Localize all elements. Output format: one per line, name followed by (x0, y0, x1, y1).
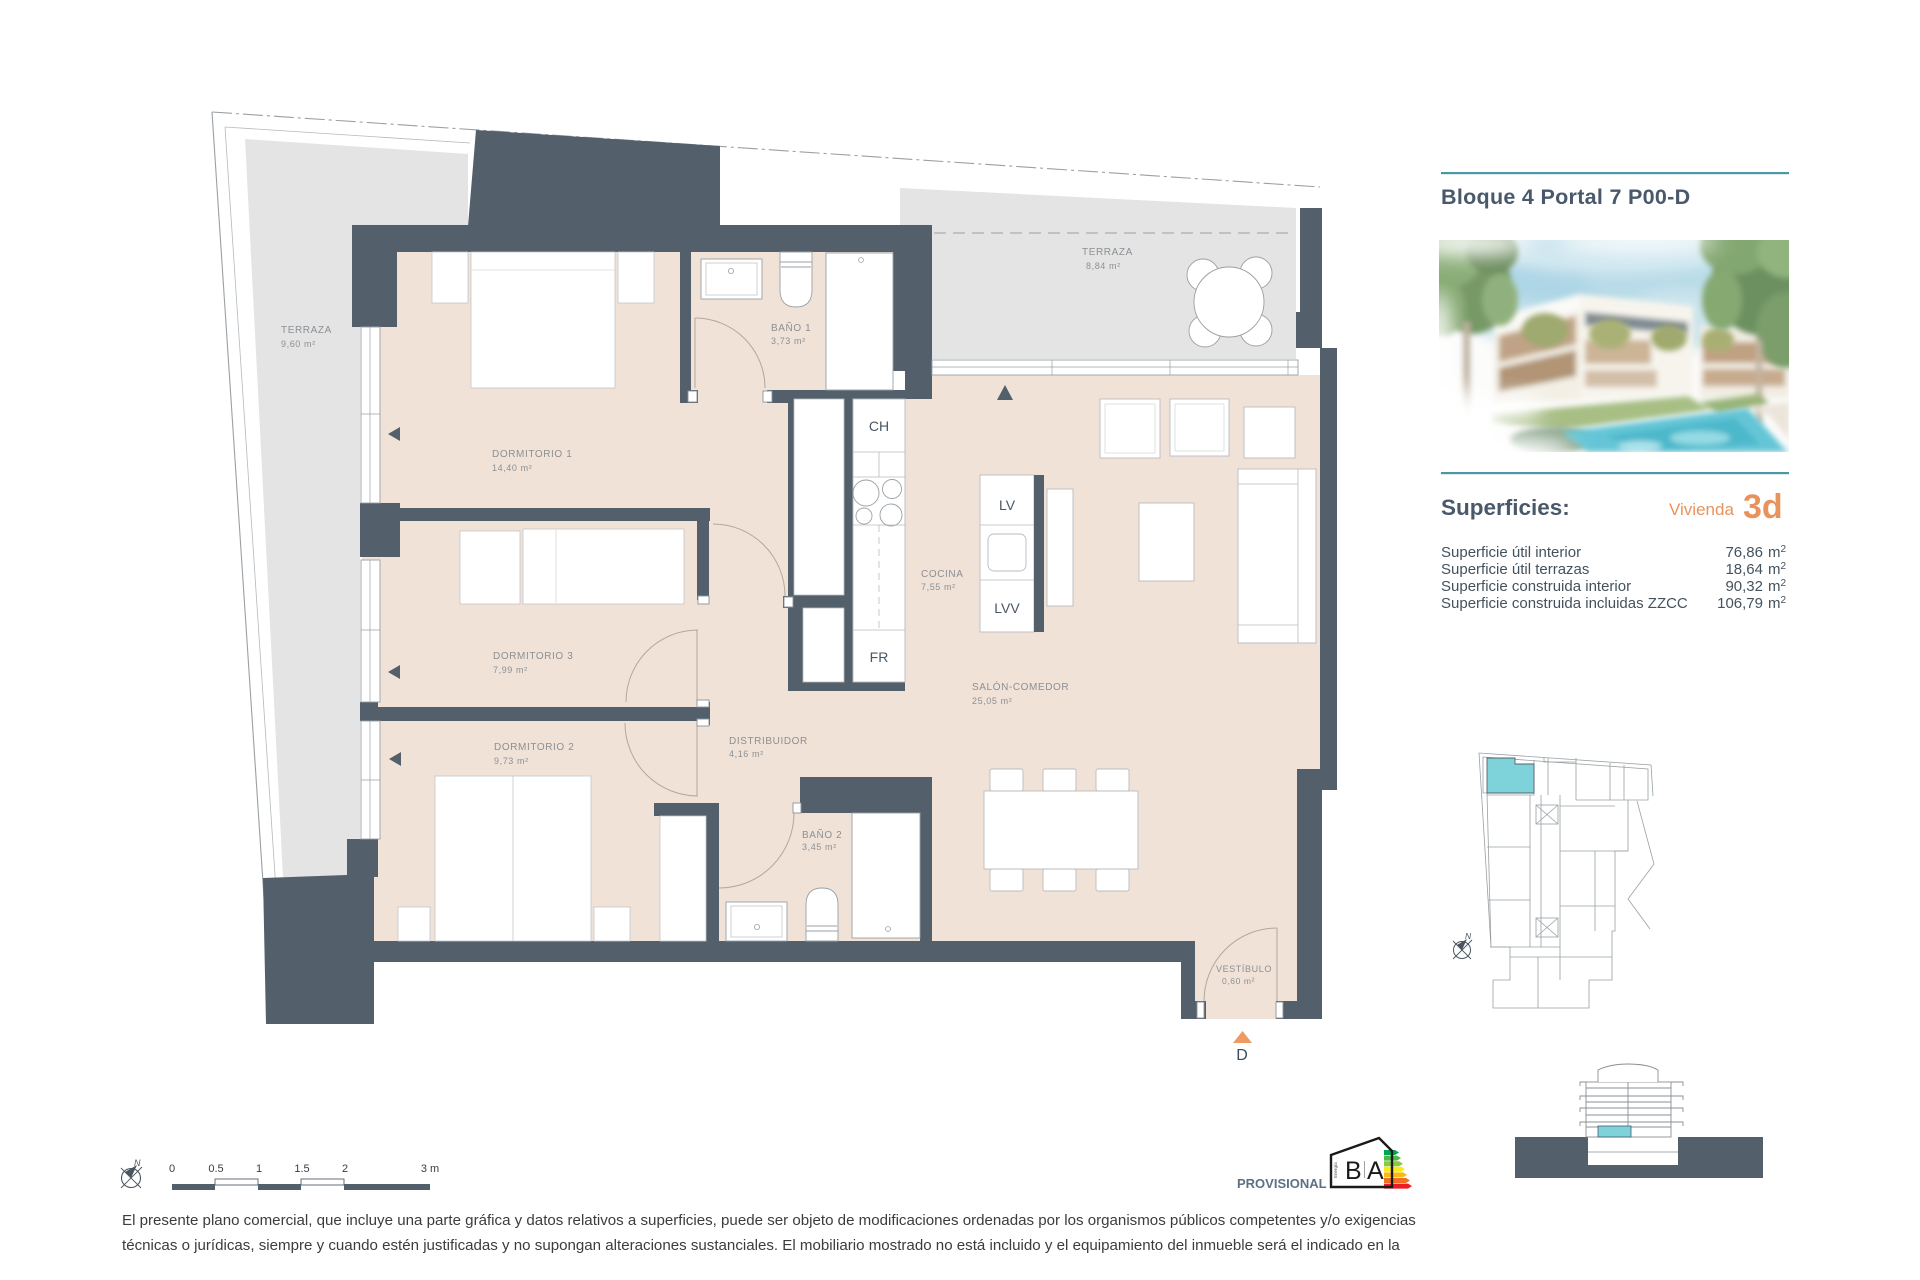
svg-text:CH: CH (869, 418, 889, 434)
svg-text:0,60 m²: 0,60 m² (1222, 976, 1255, 986)
svg-text:76,86: 76,86 (1725, 544, 1763, 561)
svg-text:Superficie construida incluida: Superficie construida incluidas ZZCC (1441, 595, 1688, 612)
svg-text:Bloque 4 Portal 7 P00-D: Bloque 4 Portal 7 P00-D (1441, 185, 1690, 209)
svg-text:0.5: 0.5 (208, 1163, 223, 1175)
svg-text:9,60 m²: 9,60 m² (281, 339, 316, 349)
svg-text:90,32: 90,32 (1725, 578, 1763, 595)
svg-text:N: N (1465, 931, 1472, 941)
svg-text:técnicas o jurídicas, siempre: técnicas o jurídicas, siempre y cuando e… (122, 1237, 1400, 1254)
svg-text:m2: m2 (1768, 544, 1787, 561)
svg-text:7,99 m²: 7,99 m² (493, 665, 528, 675)
svg-text:A: A (1367, 1157, 1384, 1185)
svg-text:Superficie útil terrazas: Superficie útil terrazas (1441, 561, 1589, 578)
svg-text:N: N (134, 1158, 141, 1168)
svg-text:VESTÍBULO: VESTÍBULO (1216, 964, 1272, 974)
svg-text:Superficie construida interior: Superficie construida interior (1441, 578, 1631, 595)
svg-text:3 m: 3 m (421, 1163, 439, 1175)
svg-text:DORMITORIO 1: DORMITORIO 1 (492, 449, 572, 460)
svg-text:Superficie útil interior: Superficie útil interior (1441, 544, 1581, 561)
svg-text:FR: FR (870, 649, 889, 665)
svg-text:1: 1 (256, 1163, 262, 1175)
svg-text:m2: m2 (1768, 561, 1787, 578)
svg-text:COCINA: COCINA (921, 569, 964, 580)
svg-text:3,45 m²: 3,45 m² (802, 842, 837, 852)
svg-text:4,16 m²: 4,16 m² (729, 749, 764, 759)
svg-text:8,84 m²: 8,84 m² (1086, 261, 1121, 271)
svg-text:TERRAZA: TERRAZA (281, 325, 332, 336)
svg-text:Vivienda: Vivienda (1669, 500, 1734, 519)
svg-text:106,79: 106,79 (1717, 595, 1763, 612)
svg-text:Superficies:: Superficies: (1441, 495, 1570, 520)
svg-text:DORMITORIO 3: DORMITORIO 3 (493, 651, 573, 662)
svg-text:1.5: 1.5 (294, 1163, 309, 1175)
svg-text:7,55 m²: 7,55 m² (921, 582, 956, 592)
svg-text:Energía: Energía (1333, 1162, 1338, 1178)
svg-text:LVV: LVV (994, 600, 1020, 616)
svg-text:25,05 m²: 25,05 m² (972, 696, 1012, 706)
svg-text:14,40 m²: 14,40 m² (492, 463, 532, 473)
svg-text:El presente plano comercial, q: El presente plano comercial, que incluye… (122, 1212, 1416, 1229)
svg-text:TERRAZA: TERRAZA (1082, 247, 1133, 258)
svg-text:D: D (1236, 1047, 1248, 1064)
svg-text:m2: m2 (1768, 578, 1787, 595)
svg-text:B: B (1345, 1157, 1362, 1185)
svg-text:SALÓN-COMEDOR: SALÓN-COMEDOR (972, 680, 1069, 693)
svg-text:BAÑO 1: BAÑO 1 (771, 321, 811, 334)
svg-text:m2: m2 (1768, 595, 1787, 612)
svg-text:DORMITORIO 2: DORMITORIO 2 (494, 742, 574, 753)
svg-text:PROVISIONAL: PROVISIONAL (1237, 1176, 1327, 1191)
svg-text:2: 2 (342, 1163, 348, 1175)
svg-text:18,64: 18,64 (1725, 561, 1763, 578)
svg-text:3d: 3d (1743, 488, 1783, 526)
svg-text:0: 0 (169, 1163, 175, 1175)
svg-text:LV: LV (999, 497, 1016, 513)
svg-text:3,73 m²: 3,73 m² (771, 336, 806, 346)
svg-text:9,73 m²: 9,73 m² (494, 756, 529, 766)
svg-text:BAÑO 2: BAÑO 2 (802, 828, 842, 841)
svg-text:DISTRIBUIDOR: DISTRIBUIDOR (729, 736, 808, 747)
